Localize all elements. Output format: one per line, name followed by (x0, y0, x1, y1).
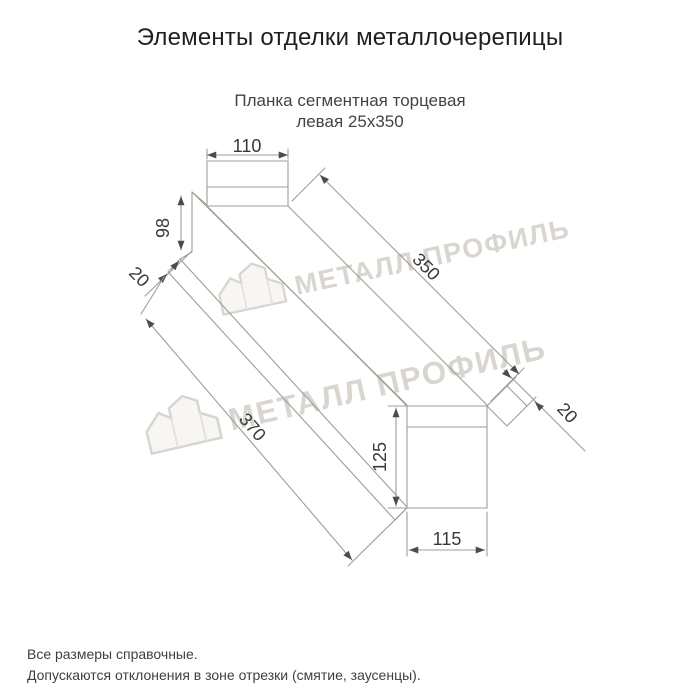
footnotes: Все размеры справочные. Допускаются откл… (27, 644, 421, 686)
dim-label-115: 115 (433, 529, 462, 549)
bottom-end-segment (407, 406, 487, 508)
dim-label-110: 110 (233, 136, 262, 156)
dimension-20-left (145, 251, 192, 296)
top-end-segment (207, 161, 288, 206)
right-end-hem-flap (487, 386, 527, 426)
dimension-125 (388, 406, 407, 508)
dim-label-20-left: 20 (125, 263, 153, 291)
watermark-upper: МЕТАЛЛ ПРОФИЛЬ (214, 197, 572, 316)
footnote-line1: Все размеры справочные. (27, 644, 421, 665)
object-outline (168, 161, 527, 520)
technical-drawing: МЕТАЛЛ ПРОФИЛЬ МЕТАЛЛ ПРОФИЛЬ (0, 0, 700, 700)
dim-label-98: 98 (153, 218, 173, 238)
footnote-line2: Допускаются отклонения в зоне отрезки (с… (27, 665, 421, 686)
dim-label-125: 125 (370, 442, 390, 472)
page: Элементы отделки металлочерепицы Планка … (0, 0, 700, 700)
watermark-text: МЕТАЛЛ ПРОФИЛЬ (225, 330, 549, 437)
